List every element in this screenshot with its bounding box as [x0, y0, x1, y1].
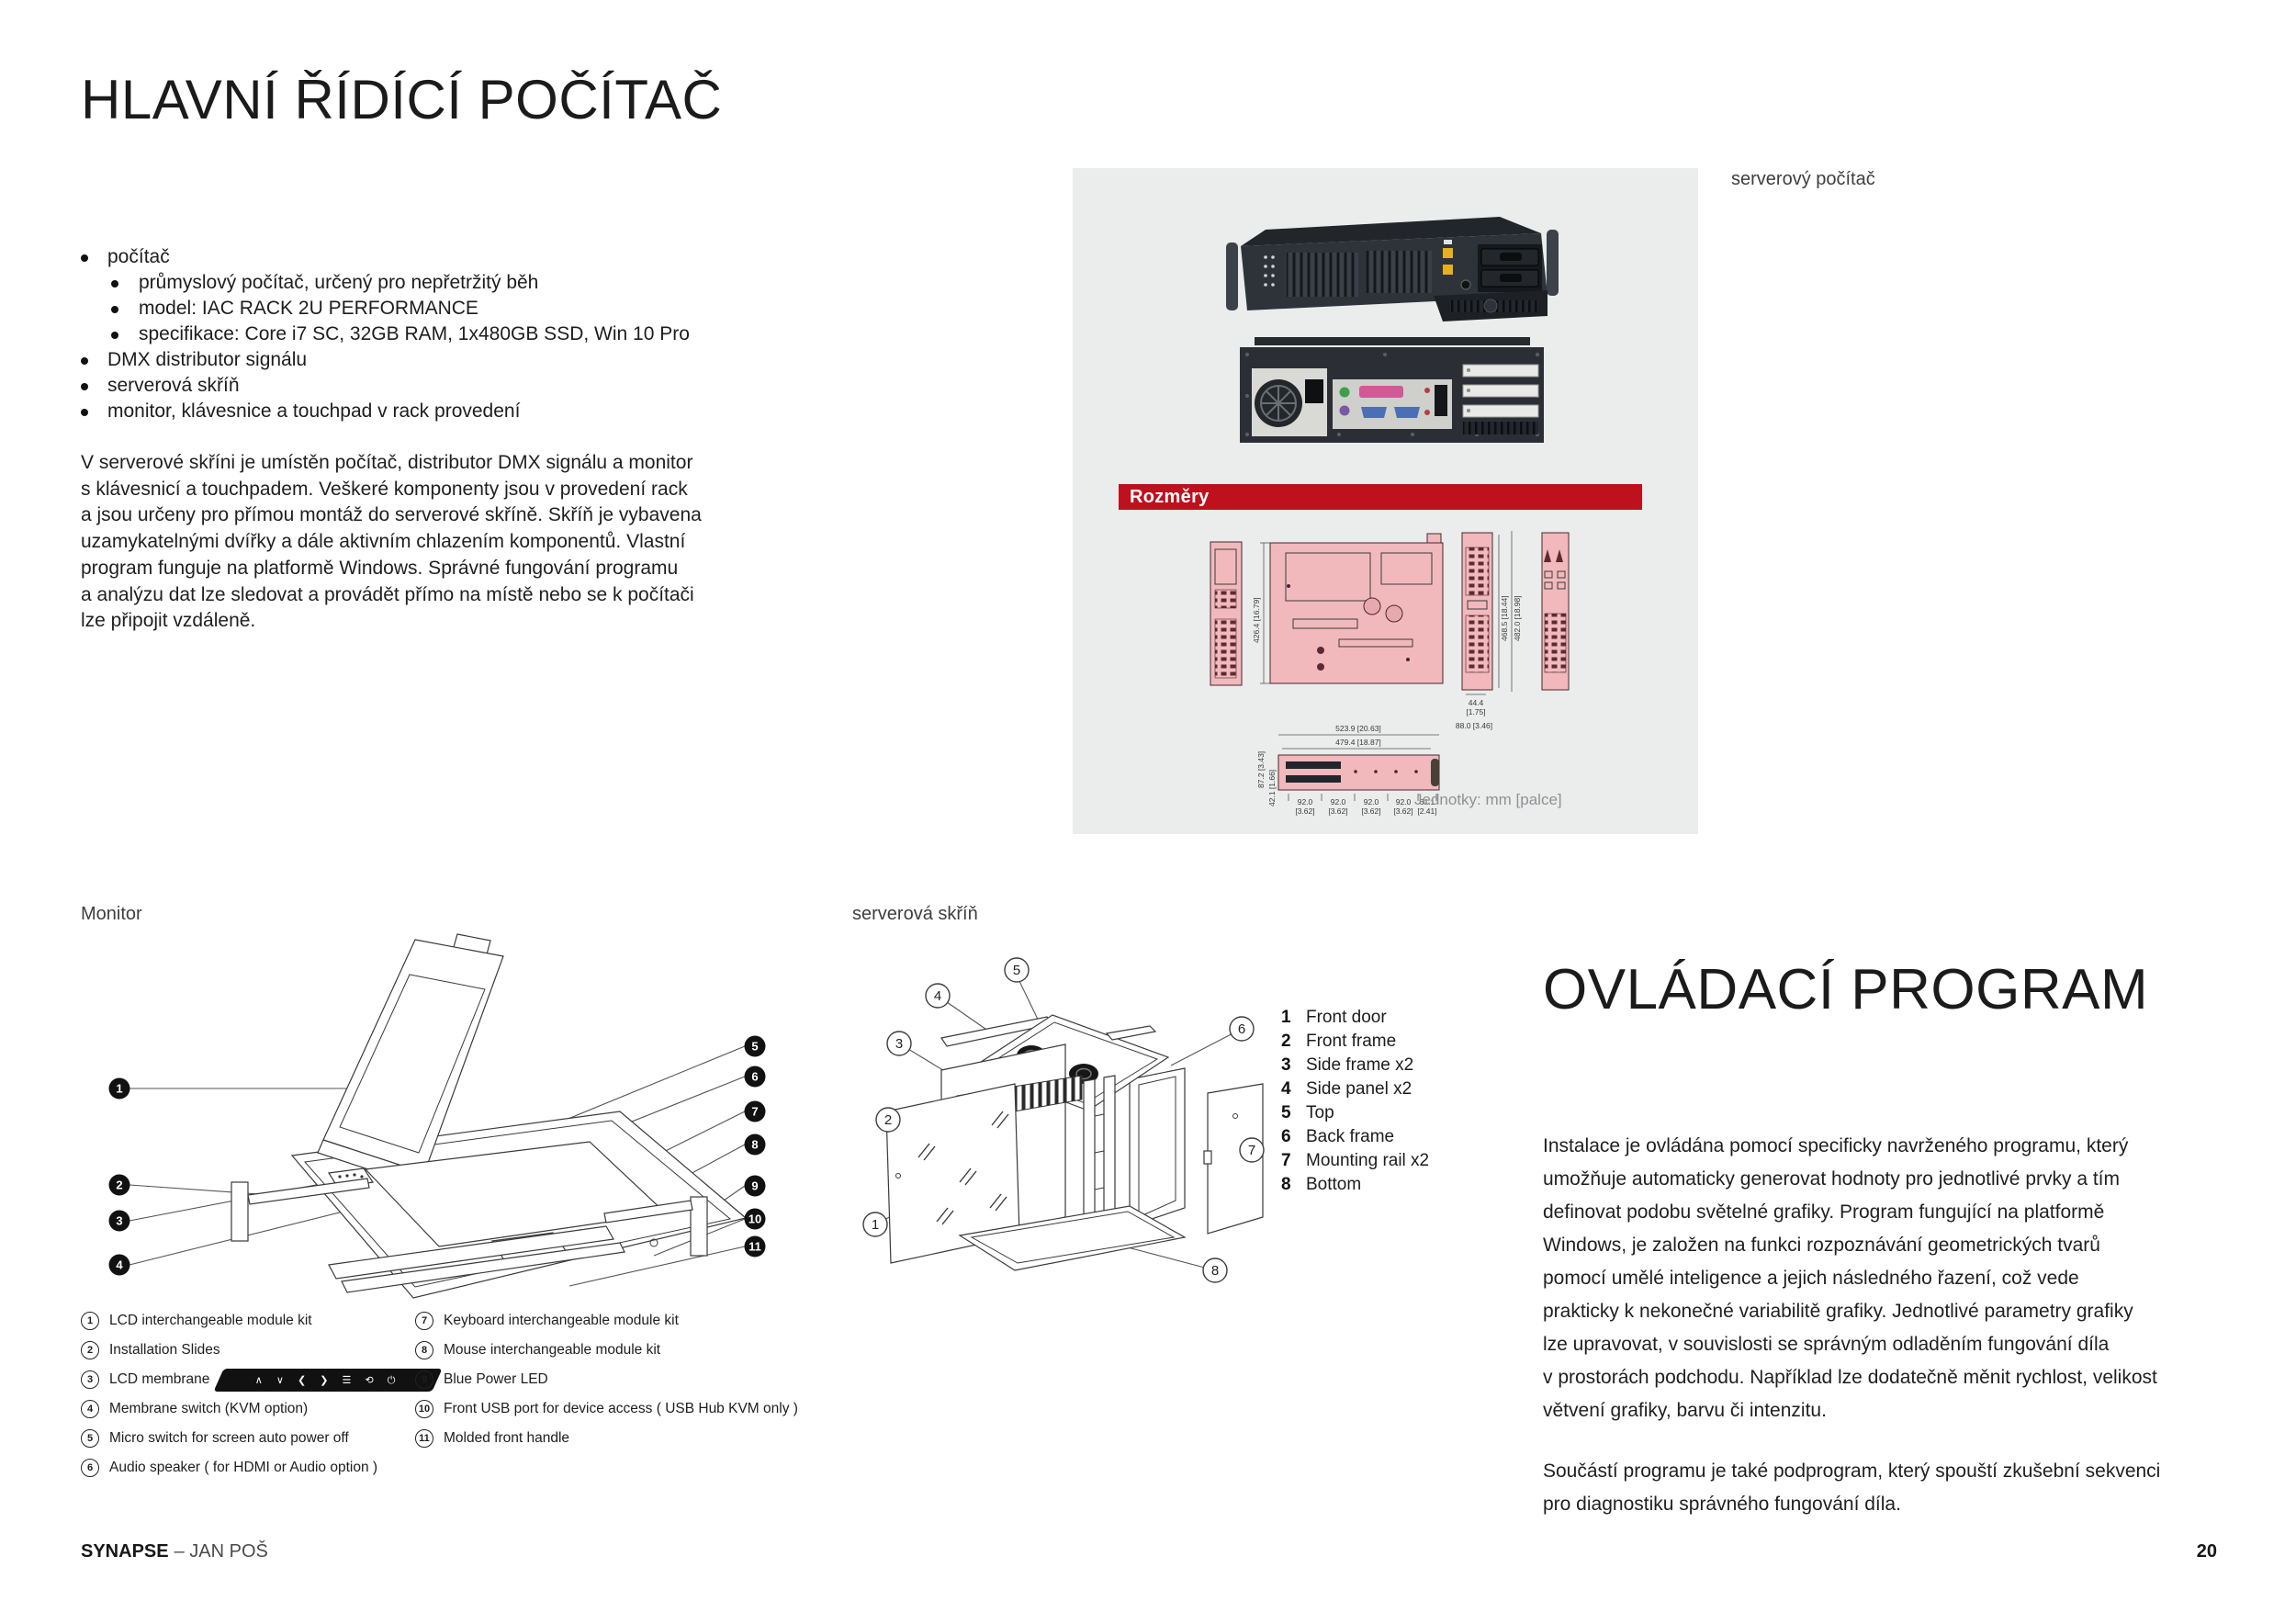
legend-item: 8Mouse interchangeable module kit	[415, 1336, 798, 1365]
bullet-dot	[111, 332, 118, 339]
slot-covers	[1463, 365, 1538, 417]
legend-item: 8Bottom	[1281, 1173, 1429, 1197]
dimensions-header-bar: Rozměry	[1119, 484, 1642, 510]
svg-text:3: 3	[895, 1036, 903, 1052]
svg-text:92.0: 92.0	[1364, 797, 1379, 806]
page-number: 20	[2197, 1541, 2217, 1562]
svg-text:479.4 [18.87]: 479.4 [18.87]	[1335, 738, 1381, 747]
callout-6: 6	[1230, 1017, 1254, 1041]
svg-text:8: 8	[1211, 1263, 1219, 1279]
callout-11: 11	[745, 1236, 766, 1257]
callout-8: 8	[1203, 1258, 1227, 1282]
cabinet-legend: 1Front door 2Front frame 3Side frame x2 …	[1281, 1006, 1429, 1197]
bullet-dot	[81, 383, 88, 390]
svg-text:6: 6	[751, 1070, 758, 1084]
svg-text:1: 1	[116, 1082, 122, 1096]
vent-grille	[1287, 253, 1358, 297]
svg-text:92.0: 92.0	[1331, 797, 1346, 806]
server-rear-photo	[1229, 332, 1555, 456]
cabinet-diagram: 1 2 3 4 5 6 7 8	[854, 942, 1286, 1286]
spec-bullet-list: počítač průmyslový počítač, určený pro n…	[81, 246, 834, 426]
rear-view: 468.5 [18.44] 482.0 [18.98] 44.4 [1.75] …	[1456, 531, 1522, 730]
callout-6: 6	[745, 1066, 766, 1088]
list-item: serverová skříň	[81, 375, 834, 400]
left-handle	[1226, 242, 1238, 310]
dimensions-header-label: Rozměry	[1119, 487, 1210, 508]
document-page: HLAVNÍ ŘÍDÍCÍ POČÍTAČ počítač průmyslový…	[0, 0, 2296, 1624]
bullet-dot	[111, 280, 118, 288]
legend-item: 1Front door	[1281, 1006, 1429, 1030]
flap-lock	[1484, 299, 1497, 312]
legend-item: 9Blue Power LED	[415, 1365, 798, 1394]
bullet-dot	[81, 409, 88, 416]
svg-text:3: 3	[116, 1214, 122, 1228]
callout-5: 5	[1005, 958, 1029, 982]
rear-vent	[1463, 422, 1538, 434]
svg-text:92.0: 92.0	[1396, 797, 1412, 806]
footer: SYNAPSE– JAN POŠ	[81, 1541, 268, 1562]
svg-text:1: 1	[872, 1217, 879, 1233]
legend-item: 6Back frame	[1281, 1125, 1429, 1149]
tray-latch	[1500, 253, 1522, 261]
svg-text:468.5 [18.44]: 468.5 [18.44]	[1500, 595, 1509, 641]
audio-jack	[1424, 410, 1430, 415]
top-view: 426.4 [16.79]	[1252, 534, 1443, 683]
legend-item: 6Audio speaker ( for HDMI or Audio optio…	[81, 1453, 437, 1483]
legend-item: 11Molded front handle	[415, 1424, 798, 1453]
server-panel-caption: serverový počítač	[1731, 169, 1875, 190]
svg-text:9: 9	[751, 1179, 758, 1193]
list-item: DMX distributor signálu	[81, 349, 834, 375]
bullet-dot	[81, 254, 88, 262]
svg-text:87.2 [3.43]: 87.2 [3.43]	[1256, 751, 1266, 788]
legend-item: 4Membrane switch (KVM option)	[81, 1394, 437, 1424]
svg-text:88.0 [3.46]: 88.0 [3.46]	[1456, 721, 1492, 730]
svg-text:4: 4	[934, 988, 941, 1004]
legend-item: 1LCD interchangeable module kit	[81, 1306, 437, 1336]
callout-3: 3	[109, 1211, 130, 1232]
fan-blades	[1262, 387, 1295, 420]
callout-1: 1	[863, 1212, 887, 1236]
callout-4: 4	[109, 1255, 130, 1276]
page-title: HLAVNÍ ŘÍDÍCÍ POČÍTAČ	[81, 68, 722, 131]
intro-paragraph: V serverové skříni je umístěn počítač, d…	[81, 450, 760, 635]
callout-10: 10	[745, 1209, 766, 1230]
legend-item: 5Micro switch for screen auto power off	[81, 1424, 437, 1453]
list-item: monitor, klávesnice a touchpad v rack pr…	[81, 400, 834, 426]
legend-item: 4Side panel x2	[1281, 1077, 1429, 1101]
tray-latch	[1500, 274, 1522, 282]
bullet-dot	[111, 306, 118, 313]
svg-text:11: 11	[748, 1240, 761, 1254]
dimension-drawing: 426.4 [16.79] 468.5 [18.44] 482.0 [18.98…	[1201, 531, 1587, 825]
svg-text:42.1 [1.66]: 42.1 [1.66]	[1267, 770, 1277, 806]
monitor-legend-left: 1LCD interchangeable module kit 2Install…	[81, 1306, 437, 1483]
list-item: specifikace: Core i7 SC, 32GB RAM, 1x480…	[81, 323, 834, 349]
vent-grille	[1366, 251, 1432, 293]
legend-item: 7Keyboard interchangeable module kit	[415, 1306, 798, 1336]
svg-text:4: 4	[116, 1258, 123, 1272]
callout-9: 9	[745, 1176, 766, 1197]
server-panel: Rozměry	[1073, 168, 1698, 834]
power-inlet	[1305, 379, 1323, 403]
legend-item: 2Installation Slides	[81, 1336, 437, 1365]
usb-stack	[1435, 385, 1447, 416]
callout-4: 4	[926, 984, 950, 1008]
top-flange	[1255, 337, 1530, 345]
membrane-buttons-bar: ∧ ∨ ❮ ❯ ☰ ⟲ ⏻	[214, 1369, 443, 1392]
callout-8: 8	[745, 1134, 766, 1156]
monitor-caption: Monitor	[81, 904, 142, 925]
svg-text:[3.62]: [3.62]	[1361, 806, 1380, 816]
keylock	[1461, 280, 1470, 289]
callout-7: 7	[745, 1101, 766, 1122]
front-view-horizontal: 523.9 [20.63] 479.4 [18.87] 87.2 [3.43] …	[1256, 724, 1439, 816]
callout-5: 5	[745, 1036, 766, 1057]
list-item: průmyslový počítač, určený pro nepřetrži…	[81, 272, 834, 298]
footer-brand: SYNAPSE	[81, 1541, 169, 1562]
svg-text:44.4: 44.4	[1469, 698, 1484, 707]
usb-port	[1443, 248, 1453, 258]
server-front-photo	[1224, 209, 1564, 324]
legend-item: 5Top	[1281, 1101, 1429, 1125]
svg-text:[3.62]: [3.62]	[1328, 806, 1347, 816]
units-note: Jednotky: mm [palce]	[1414, 791, 1562, 809]
legend-item: 3LCD membrane ∧ ∨ ❮ ❯ ☰ ⟲ ⏻	[81, 1365, 437, 1394]
callout-1: 1	[109, 1078, 130, 1100]
svg-text:[1.75]: [1.75]	[1466, 707, 1485, 716]
callout-2: 2	[109, 1175, 130, 1196]
svg-text:2: 2	[884, 1112, 892, 1128]
callout-3: 3	[887, 1032, 911, 1055]
svg-text:92.0: 92.0	[1298, 797, 1313, 806]
svg-text:426.4 [16.79]: 426.4 [16.79]	[1252, 597, 1261, 643]
svg-text:6: 6	[1238, 1021, 1245, 1037]
legend-item: 2Front frame	[1281, 1030, 1429, 1054]
program-title: OVLÁDACÍ PROGRAM	[1543, 957, 2148, 1022]
svg-text:5: 5	[1013, 963, 1020, 978]
svg-text:523.9 [20.63]: 523.9 [20.63]	[1335, 724, 1381, 733]
bullet-dot	[81, 357, 88, 365]
svg-text:482.0 [18.98]: 482.0 [18.98]	[1513, 595, 1522, 641]
svg-text:2: 2	[116, 1179, 122, 1192]
program-paragraph-1: Instalace je ovládána pomocí specificky …	[1543, 1130, 2241, 1427]
cabinet-caption: serverová skříň	[852, 904, 978, 925]
monitor-legend-right: 7Keyboard interchangeable module kit 8Mo…	[415, 1306, 798, 1453]
cabinet-exploded-drawing	[886, 1015, 1263, 1270]
callout-2: 2	[876, 1108, 900, 1132]
front-view-vertical	[1542, 533, 1569, 690]
legend-item: 3Side frame x2	[1281, 1054, 1429, 1077]
callout-7: 7	[1240, 1138, 1264, 1162]
rack-console-drawing	[231, 934, 746, 1298]
usb-port	[1443, 265, 1453, 275]
list-item: model: IAC RACK 2U PERFORMANCE	[81, 298, 834, 323]
program-paragraph-2: Součástí programu je také podprogram, kt…	[1543, 1455, 2241, 1521]
ps2-port	[1340, 388, 1350, 398]
svg-text:10: 10	[748, 1212, 761, 1226]
svg-text:8: 8	[751, 1138, 758, 1152]
vga-port	[1394, 407, 1420, 418]
ps2-port	[1340, 406, 1350, 416]
svg-text:[3.62]: [3.62]	[1295, 806, 1314, 816]
footer-author: – JAN POŠ	[174, 1541, 268, 1562]
audio-jack	[1424, 388, 1430, 393]
list-item: počítač	[81, 246, 834, 272]
svg-text:[3.62]: [3.62]	[1393, 806, 1412, 816]
right-handle	[1547, 230, 1559, 296]
monitor-diagram: 1 2 3 4 5 6 7 8 9 10 11	[92, 932, 799, 1300]
switch	[1444, 240, 1452, 244]
svg-text:7: 7	[1248, 1143, 1255, 1158]
parallel-port	[1359, 386, 1403, 398]
svg-text:7: 7	[751, 1105, 758, 1119]
side-profile-view	[1210, 542, 1242, 685]
vga-port	[1361, 407, 1387, 418]
legend-item: 10Front USB port for device access ( USB…	[415, 1394, 798, 1424]
svg-text:5: 5	[751, 1040, 758, 1054]
legend-item: 7Mounting rail x2	[1281, 1149, 1429, 1173]
